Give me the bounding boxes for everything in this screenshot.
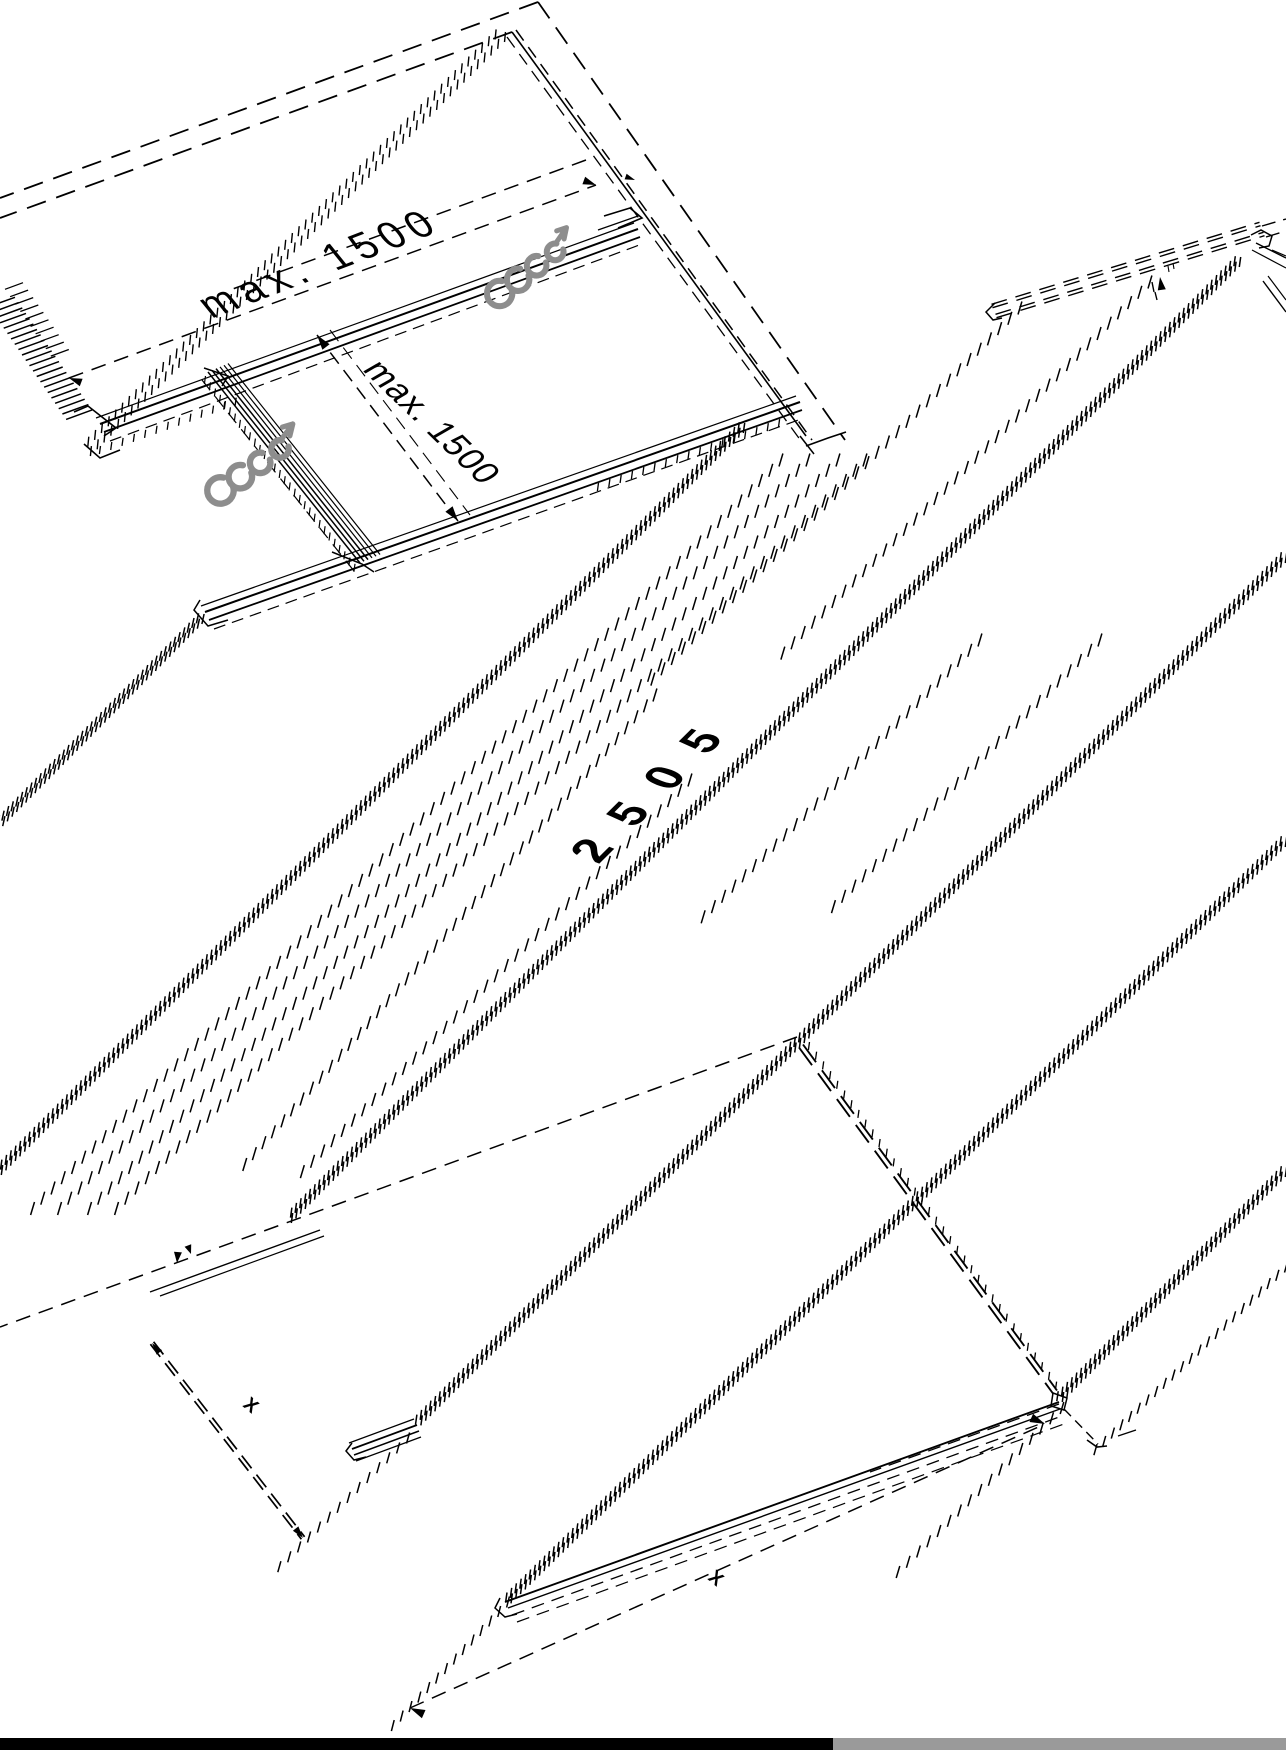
svg-text:X: X: [239, 1394, 262, 1418]
svg-text:max. 1500: max. 1500: [355, 354, 509, 490]
svg-text:X: X: [704, 1567, 727, 1591]
svg-text:max. 1500: max. 1500: [188, 200, 451, 326]
